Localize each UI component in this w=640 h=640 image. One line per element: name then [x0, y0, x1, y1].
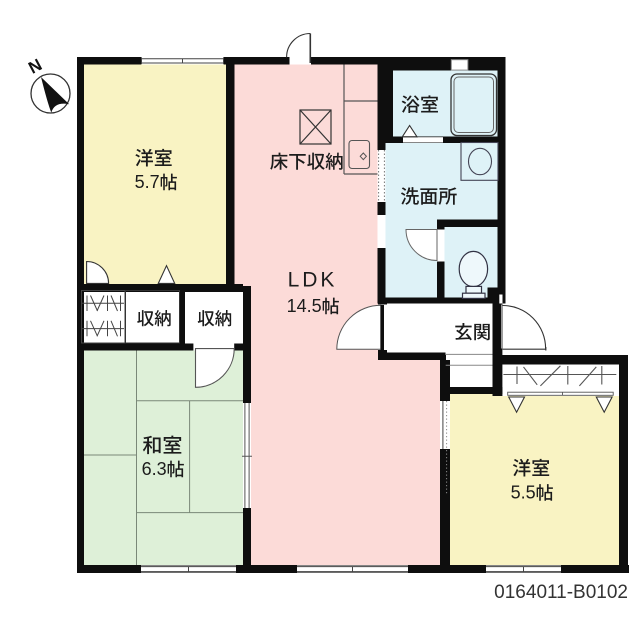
svg-text:14.5: 14.5 — [287, 296, 322, 316]
svg-text:LDK: LDK — [288, 269, 338, 292]
svg-text:0164011-B0102: 0164011-B0102 — [494, 582, 628, 603]
svg-text:6.3: 6.3 — [142, 459, 167, 479]
svg-text:5.5: 5.5 — [511, 483, 536, 503]
svg-text:5.7: 5.7 — [135, 172, 160, 192]
